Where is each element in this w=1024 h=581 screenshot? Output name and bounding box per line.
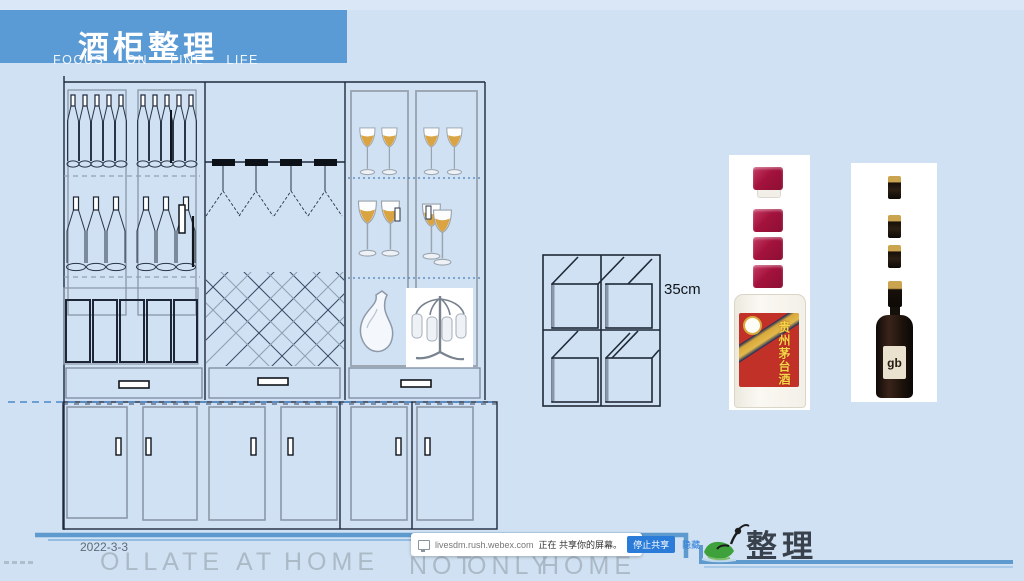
moutai-label-text: 贵州茅台酒 xyxy=(776,321,793,386)
moutai-bottle-body: 贵州茅台酒 xyxy=(734,294,806,408)
moutai-logo-circle xyxy=(743,316,762,335)
screen-share-notification: livesdm.rush.webex.com 正在 共享你的屏幕。 停止共享 隐… xyxy=(411,533,642,556)
wine-bottle-body: gb xyxy=(876,315,913,398)
moutai-cap xyxy=(753,237,783,260)
brand-logo-text: 整理 xyxy=(746,521,818,566)
moutai-cap-collar xyxy=(757,190,781,198)
wine-cap xyxy=(888,176,901,199)
watermark-word: HOME xyxy=(541,552,636,581)
watermark-word: OLLATE xyxy=(100,548,224,577)
share-message: 正在 共享你的屏幕。 xyxy=(539,538,623,551)
dimension-label: 35cm xyxy=(664,281,701,298)
wine-cap xyxy=(888,215,901,238)
corner-mark xyxy=(12,561,17,564)
corner-mark xyxy=(28,561,33,564)
corner-mark xyxy=(4,561,9,564)
moutai-cap xyxy=(753,265,783,288)
corner-mark xyxy=(20,561,25,564)
moutai-label: 贵州茅台酒 xyxy=(739,313,799,387)
watermark-word: HOME xyxy=(284,548,379,577)
dark-wine-bottle-image: gb xyxy=(851,163,937,402)
screen-icon xyxy=(418,540,430,550)
stop-sharing-button[interactable]: 停止共享 xyxy=(627,536,675,553)
wine-bottle-label: gb xyxy=(883,346,906,379)
moutai-cap xyxy=(753,167,783,190)
mantis-icon xyxy=(698,519,750,565)
brand-logo: 整理 xyxy=(698,519,898,567)
share-source: livesdm.rush.webex.com xyxy=(435,540,534,550)
moutai-bottle-image: 贵州茅台酒 xyxy=(729,155,810,410)
moutai-cap xyxy=(753,209,783,232)
wine-cap xyxy=(888,245,901,268)
wine-bottle-cap xyxy=(888,281,902,307)
watermark-word: AT xyxy=(236,548,276,577)
cube-shelf-diagram xyxy=(543,255,660,406)
